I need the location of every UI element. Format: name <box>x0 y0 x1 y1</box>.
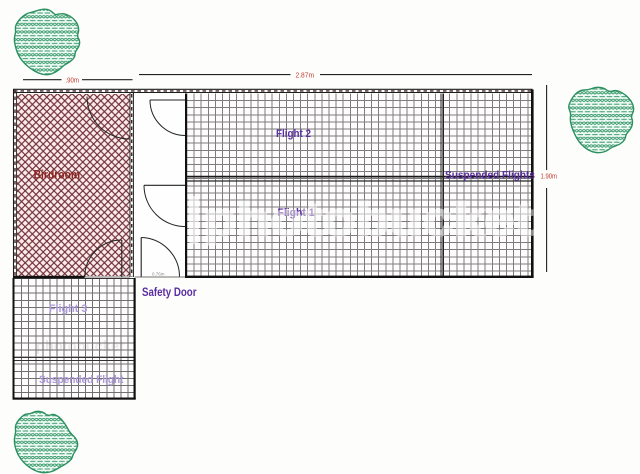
svg-text:0.76m: 0.76m <box>152 272 165 277</box>
svg-text:Flight 3: Flight 3 <box>49 303 88 315</box>
svg-text:photobucket: photobucket <box>203 193 533 245</box>
svg-text:2.87m: 2.87m <box>296 71 315 80</box>
svg-text:Safety Door: Safety Door <box>142 285 197 299</box>
svg-text:Suspended Flights: Suspended Flights <box>445 169 535 181</box>
svg-text:photobucket: photobucket <box>36 338 124 355</box>
svg-text:Birdroom: Birdroom <box>34 170 81 182</box>
svg-text:1.90m: 1.90m <box>541 171 558 180</box>
svg-text:Suspended Flight: Suspended Flight <box>39 374 124 386</box>
svg-text:.90m: .90m <box>66 76 80 85</box>
svg-text:Flight 2: Flight 2 <box>276 128 311 140</box>
